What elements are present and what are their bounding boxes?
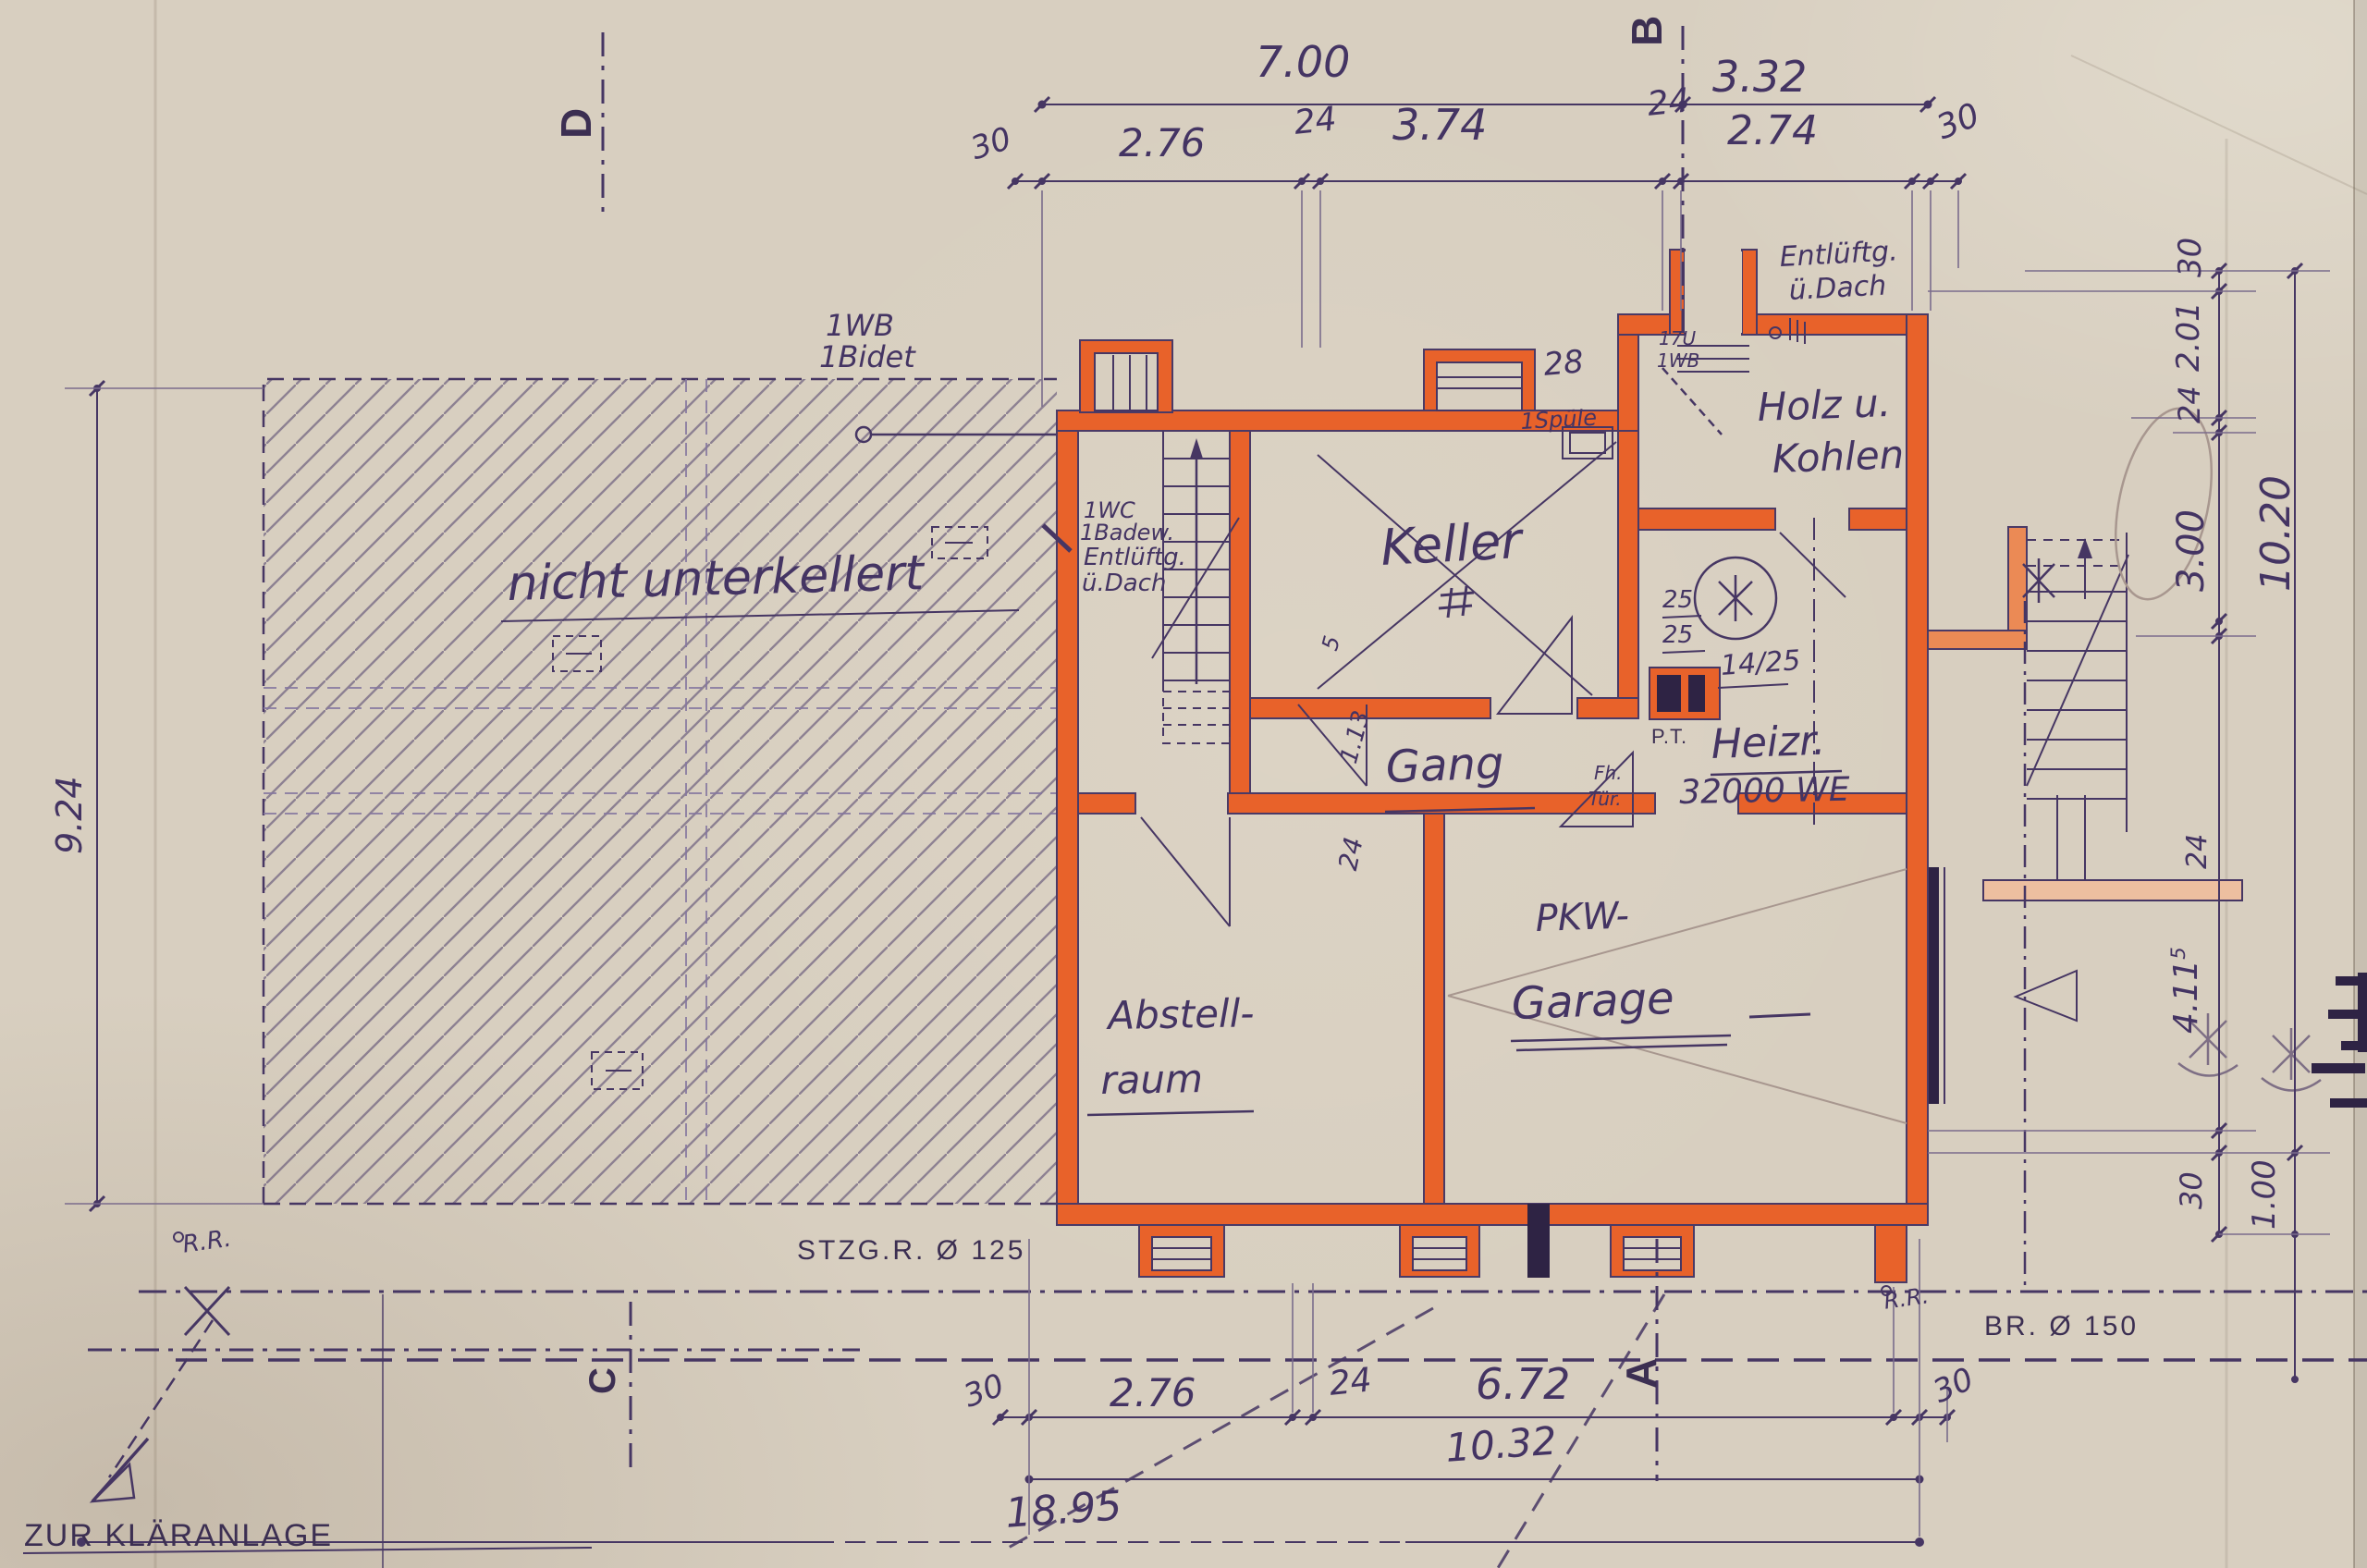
dim-top-274: 2.74	[1727, 111, 1818, 152]
note-1wb2: 1WB	[1657, 351, 1699, 370]
dim-25b: 25	[1662, 623, 1693, 647]
note-17u: 17U	[1659, 329, 1696, 348]
dim-right-24b: 24	[2184, 834, 2212, 869]
section-marker-a: A	[1620, 1357, 1662, 1389]
dim-25a: 25	[1662, 588, 1693, 612]
room-abstell: Abstell-	[1108, 994, 1255, 1035]
dim-right-201: 2.01	[2173, 301, 2204, 372]
room-garage: Garage	[1511, 976, 1674, 1026]
label-rr-left: R.R.	[181, 1227, 233, 1257]
section-marker-c: C	[584, 1366, 621, 1394]
label-stzg: STZG.R. Ø 125	[797, 1237, 1025, 1265]
dim-top-374: 3.74	[1392, 104, 1487, 146]
note-entlueftung-wc2: ü.Dach	[1082, 571, 1166, 595]
note-entlueftung-dach2: ü.Dach	[1788, 272, 1887, 304]
note-1bidet: 1Bidet	[819, 342, 915, 372]
label-br: BR. Ø 150	[1984, 1313, 2139, 1341]
label-pt: P.T.	[1651, 727, 1687, 747]
label-tuer: Tür.	[1588, 790, 1622, 808]
section-marker-d: D	[555, 107, 597, 139]
label-nicht-unterkellert: nicht unterkellert	[507, 549, 925, 608]
dim-28: 28	[1542, 346, 1585, 381]
room-keller: Keller	[1380, 516, 1523, 573]
note-entlueftung-wc: Entlüftg.	[1084, 545, 1186, 570]
room-pkw: PKW-	[1535, 897, 1630, 937]
dim-right-30t: 30	[2175, 238, 2206, 277]
note-1badew: 1Badew.	[1080, 521, 1174, 544]
dim-right-4115: 4.115	[2169, 947, 2203, 1034]
dim-right-1020: 10.20	[2256, 475, 2297, 592]
note-1wb: 1WB	[826, 311, 894, 340]
exterior-stair	[1928, 399, 2367, 1108]
label-rr-right: R.R.	[1883, 1284, 1930, 1313]
dim-top-276: 2.76	[1119, 124, 1206, 163]
label-32000we: 32000 WE	[1679, 774, 1850, 810]
dim-bot-1032: 10.32	[1444, 1422, 1558, 1468]
entrance-step	[1527, 1204, 1550, 1278]
dim-right-30b: 30	[2177, 1171, 2206, 1209]
dim-bot-1895: 18.95	[1004, 1486, 1123, 1535]
dim-1425: 14/25	[1720, 647, 1801, 680]
note-1wc: 1WC	[1084, 499, 1135, 521]
dim-right-4115-sup: 5	[2167, 947, 2190, 960]
room-raum: raum	[1100, 1060, 1203, 1100]
dim-bot-276: 2.76	[1110, 1374, 1196, 1413]
dim-bot-24: 24	[1328, 1364, 1373, 1402]
dim-top-24a: 24	[1293, 103, 1338, 141]
dim-right-300: 3.00	[2173, 509, 2210, 592]
room-holz: Holz u.	[1757, 384, 1892, 427]
dim-top-24b: 24	[1646, 84, 1691, 122]
hatched-area	[264, 379, 1057, 1204]
floorplan-sheet: D B C A 7.00 3.32 30 2.76 24 3.74 24 2.7…	[0, 0, 2367, 1568]
dim-right-24t: 24	[2175, 386, 2204, 423]
section-marker-b: B	[1625, 15, 1668, 46]
room-gang: Gang	[1385, 741, 1504, 790]
note-entlueftung-dach: Entlüftg.	[1779, 238, 1898, 272]
dim-right-100: 1.00	[2249, 1159, 2280, 1230]
dim-top-332: 3.32	[1712, 55, 1807, 98]
room-kohlen: Kohlen	[1772, 435, 1905, 479]
dim-top-700: 7.00	[1256, 41, 1350, 83]
dim-right-4115-main: 4.11	[2167, 960, 2205, 1034]
dim-24-door: 24	[1335, 835, 1367, 873]
label-fh: Fh.	[1594, 764, 1623, 782]
dim-left-924: 9.24	[52, 776, 87, 854]
note-1spuele: 1Spüle	[1520, 407, 1598, 433]
dim-bot-672: 6.72	[1476, 1363, 1570, 1405]
label-klaeranlage: ZUR KLÄRANLAGE	[24, 1520, 333, 1551]
room-heizr: Heizr.	[1711, 721, 1826, 766]
